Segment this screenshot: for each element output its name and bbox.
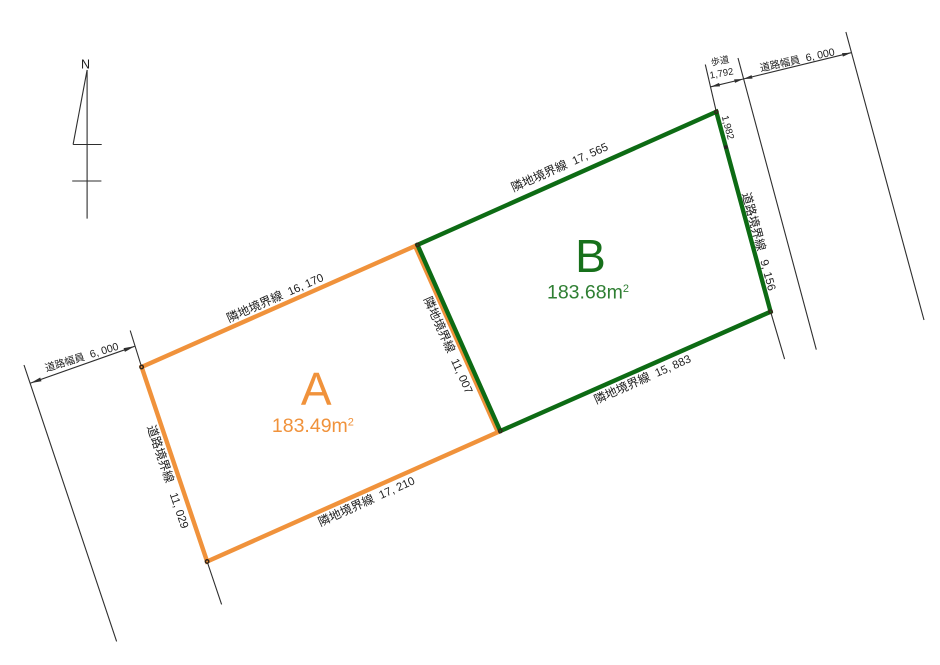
svg-text:B: B	[575, 230, 606, 282]
svg-text:N: N	[81, 58, 90, 72]
svg-text:183.68m2: 183.68m2	[547, 281, 629, 303]
svg-text:A: A	[301, 363, 332, 415]
svg-text:183.49m2: 183.49m2	[272, 415, 354, 437]
